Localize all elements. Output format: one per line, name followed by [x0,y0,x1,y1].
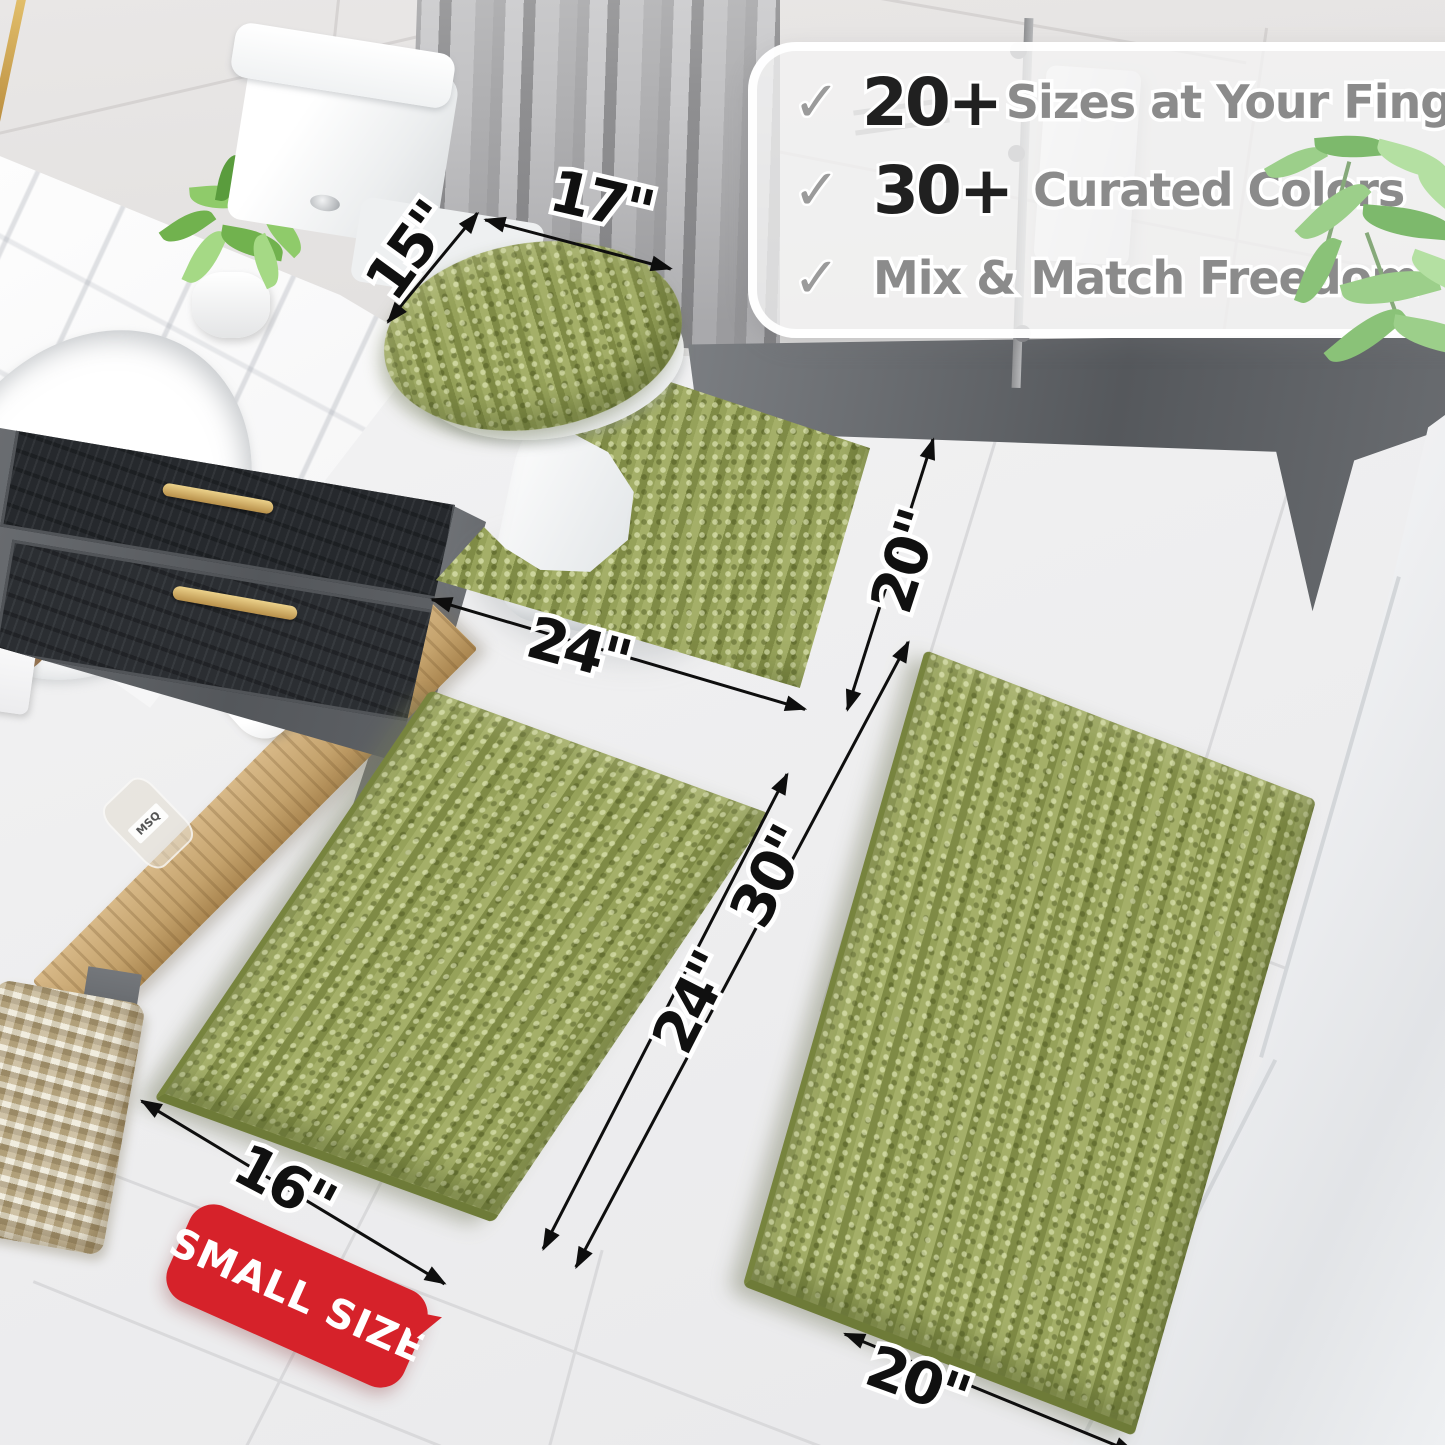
dimension-label-contour-depth: 20" [857,503,953,621]
stat-value: 30+ [873,152,1011,229]
bathroom-scene: MSQ 15" 17" 24" 20" 30" 24" 16" 20" [0,0,1445,1445]
plant-leaf [1361,204,1445,241]
floor-grout-line [546,1250,603,1445]
soap-bottle-label: MSQ [127,802,169,844]
vanity-cabinet [0,420,460,770]
plant-pot [192,272,270,338]
check-icon: ✓ [793,246,851,311]
check-icon: ✓ [793,158,851,223]
plant-leaf [1390,314,1445,359]
wicker-basket [0,979,146,1256]
stat-value: 20+ [862,64,984,141]
hanging-plant [1240,120,1445,360]
plant-leaf [1294,232,1342,308]
check-icon: ✓ [793,70,840,135]
